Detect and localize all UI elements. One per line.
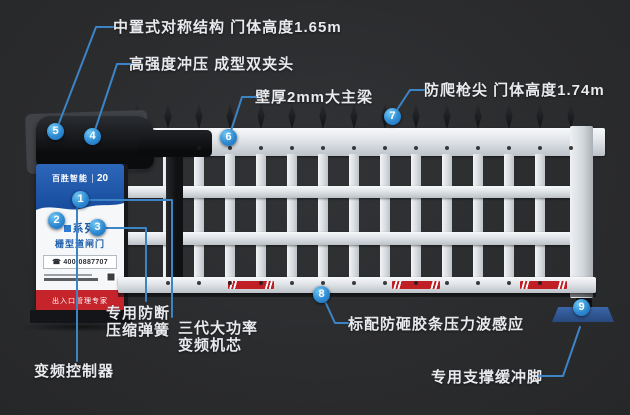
callout-3: 3 bbox=[89, 219, 106, 236]
spike-finial bbox=[224, 103, 236, 129]
beam-rivet bbox=[538, 146, 542, 150]
spike-finial bbox=[503, 103, 515, 129]
callout-2: 2 bbox=[48, 212, 65, 229]
microtext-bars bbox=[44, 274, 98, 281]
callout-6: 6 bbox=[220, 129, 237, 146]
lift-linkage-rod bbox=[166, 148, 183, 292]
beam-rivet bbox=[228, 146, 232, 150]
beam-rivet bbox=[321, 146, 325, 150]
leader-support-foot bbox=[539, 327, 580, 376]
spike-finial bbox=[441, 103, 453, 129]
beam-rivet bbox=[352, 146, 356, 150]
label-spring-line1: 专用防断 bbox=[106, 305, 170, 322]
spike-finial bbox=[534, 103, 546, 129]
label-spring-line2: 压缩弹簧 bbox=[106, 322, 170, 339]
beam-rivet bbox=[414, 146, 418, 150]
beam-rivet bbox=[259, 146, 263, 150]
spike-finial bbox=[410, 103, 422, 129]
spike-finial bbox=[348, 103, 360, 129]
label-pressure-sensor: 标配防砸胶条压力波感应 bbox=[348, 316, 524, 333]
spike-finial bbox=[472, 103, 484, 129]
fence-picket bbox=[349, 154, 359, 280]
rail-rivet bbox=[321, 281, 325, 285]
rail-rivet bbox=[414, 281, 418, 285]
rail-rivet bbox=[259, 281, 263, 285]
callout-7: 7 bbox=[384, 108, 401, 125]
fence-picket bbox=[535, 154, 545, 280]
fence-picket bbox=[411, 154, 421, 280]
callout-8: 8 bbox=[313, 286, 330, 303]
fence-picket bbox=[256, 154, 266, 280]
fence-picket bbox=[442, 154, 452, 280]
label-support-foot: 专用支撑缓冲脚 bbox=[431, 369, 543, 386]
label-motor-line2: 变频机芯 bbox=[178, 337, 258, 354]
spike-finial bbox=[317, 103, 329, 129]
middle-rail-upper bbox=[122, 186, 592, 198]
beam-rivet bbox=[476, 146, 480, 150]
label-clamp-head: 高强度冲压 成型双夹头 bbox=[129, 56, 294, 73]
brand-year: 20 bbox=[97, 173, 108, 184]
product-diagram-stage: 百胜智能 20 系列 栅型道闸门 ☎ 400-0887707 出入口管理专家 bbox=[0, 0, 630, 415]
callout-5: 5 bbox=[47, 123, 64, 140]
rail-rivet bbox=[507, 281, 511, 285]
rail-rivet bbox=[445, 281, 449, 285]
beam-rivet bbox=[507, 146, 511, 150]
fence-picket bbox=[194, 154, 204, 280]
bottom-shadow bbox=[118, 293, 596, 297]
callout-9: 9 bbox=[573, 299, 590, 316]
label-motor: 三代大功率 变频机芯 bbox=[178, 320, 258, 354]
rail-rivet bbox=[538, 281, 542, 285]
spike-finial bbox=[255, 103, 267, 129]
brand-name: 百胜智能 bbox=[52, 173, 88, 184]
reflective-strip bbox=[520, 281, 567, 289]
rail-rivet bbox=[197, 281, 201, 285]
arm-end-post bbox=[570, 126, 593, 298]
beam-rivet bbox=[569, 146, 573, 150]
callout-4: 4 bbox=[84, 128, 101, 145]
qr-code bbox=[106, 272, 116, 282]
rail-rivet bbox=[166, 281, 170, 285]
beam-rivet bbox=[197, 146, 201, 150]
label-controller: 变频控制器 bbox=[34, 363, 114, 380]
rail-rivet bbox=[383, 281, 387, 285]
rail-rivet bbox=[290, 281, 294, 285]
label-spring: 专用防断 压缩弹簧 bbox=[106, 305, 170, 339]
fence-picket bbox=[287, 154, 297, 280]
rail-rivet bbox=[352, 281, 356, 285]
series-subtitle: 栅型道闸门 bbox=[36, 237, 124, 250]
rail-rivet bbox=[228, 281, 232, 285]
hotline-box: ☎ 400-0887707 bbox=[43, 255, 117, 269]
label-main-beam: 壁厚2mm大主梁 bbox=[255, 89, 373, 106]
callout-1: 1 bbox=[72, 191, 89, 208]
fence-picket bbox=[225, 154, 235, 280]
fence-picket bbox=[318, 154, 328, 280]
label-anti-climb: 防爬枪尖 门体高度1.74m bbox=[424, 82, 605, 99]
microtext-row bbox=[44, 272, 116, 282]
logo-divider bbox=[92, 174, 93, 183]
brand-logo: 百胜智能 20 bbox=[36, 164, 124, 184]
middle-rail-lower bbox=[122, 232, 592, 245]
machine-cabinet: 百胜智能 20 系列 栅型道闸门 ☎ 400-0887707 出入口管理专家 bbox=[36, 164, 124, 312]
spike-finial bbox=[286, 103, 298, 129]
rail-rivet bbox=[476, 281, 480, 285]
fence-picket bbox=[380, 154, 390, 280]
reflective-strip bbox=[228, 281, 274, 289]
label-motor-line1: 三代大功率 bbox=[178, 320, 258, 337]
arm-clamp-head bbox=[138, 130, 212, 157]
fence-picket bbox=[504, 154, 514, 280]
fence-picket bbox=[473, 154, 483, 280]
beam-rivet bbox=[290, 146, 294, 150]
label-center-structure: 中置式对称结构 门体高度1.65m bbox=[113, 19, 342, 36]
spike-finial bbox=[193, 103, 205, 129]
spike-finial bbox=[162, 103, 174, 129]
beam-rivet bbox=[383, 146, 387, 150]
beam-rivet bbox=[445, 146, 449, 150]
